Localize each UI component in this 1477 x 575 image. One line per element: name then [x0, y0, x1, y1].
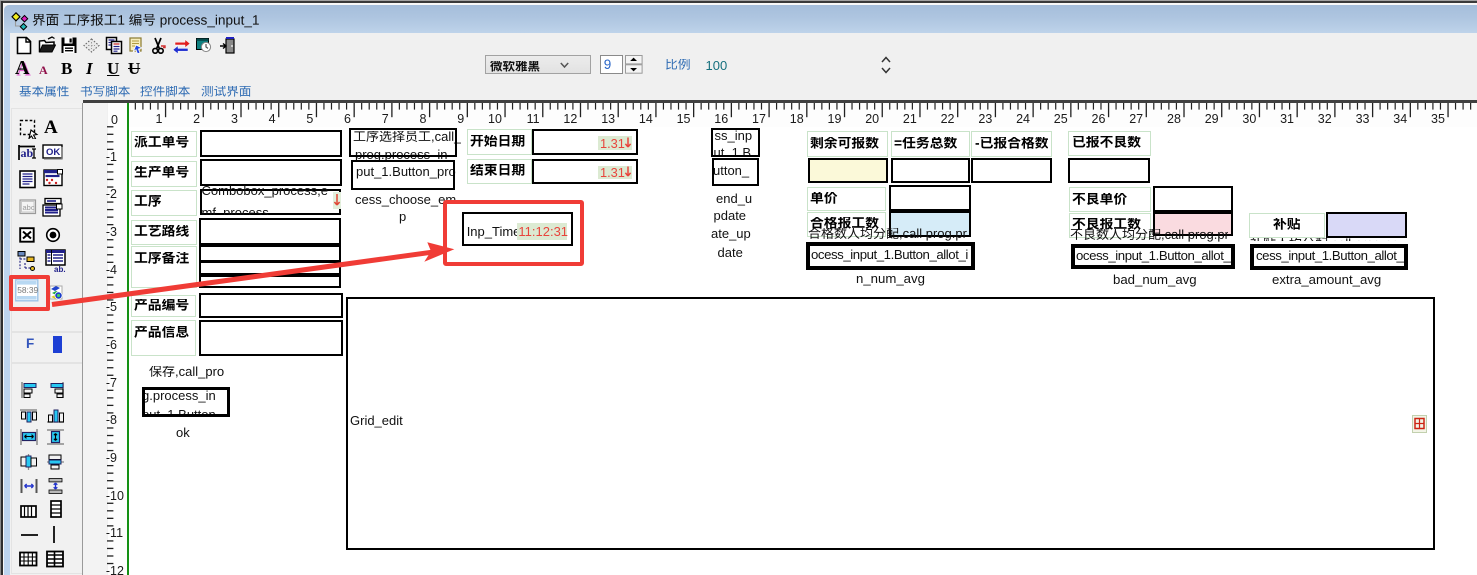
svg-text:OK: OK — [46, 147, 60, 158]
svg-text:abc: abc — [23, 203, 35, 212]
svg-text:ab: ab — [21, 146, 34, 160]
